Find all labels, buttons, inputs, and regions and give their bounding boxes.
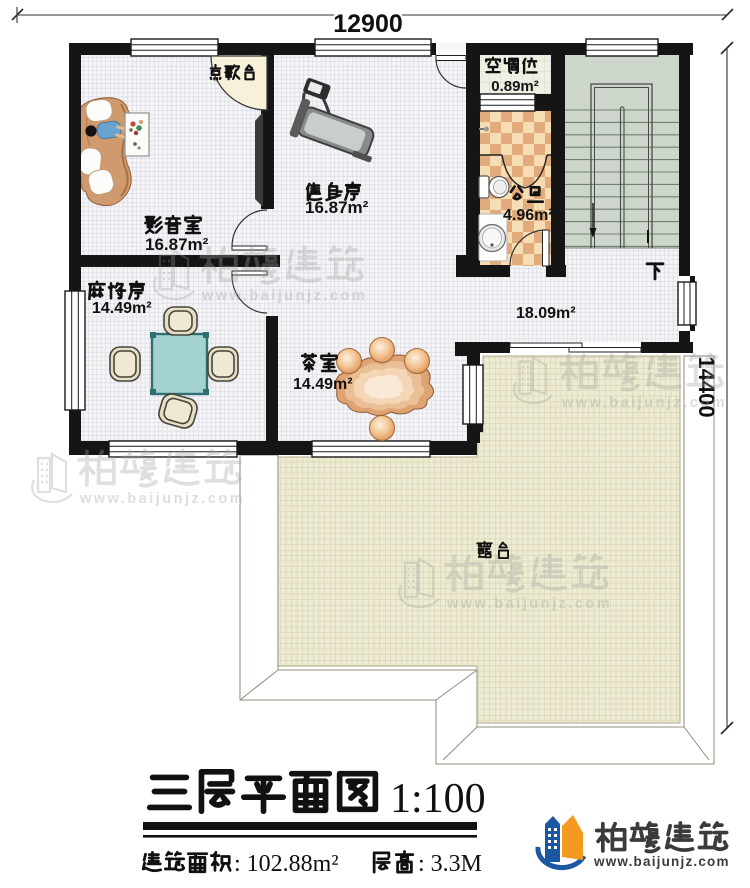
svg-text:18.09m²: 18.09m²	[516, 305, 576, 322]
svg-text:www.baijunjz.com: www.baijunjz.com	[446, 596, 612, 612]
svg-text:www.baijunjz.com: www.baijunjz.com	[201, 288, 367, 304]
svg-text:: 102.88m²: : 102.88m²	[234, 851, 339, 877]
svg-text:0.89m²: 0.89m²	[491, 78, 539, 95]
svg-text:: 3.3M: : 3.3M	[418, 851, 482, 877]
svg-text:4.96m²: 4.96m²	[503, 207, 554, 224]
svg-text:www.baijunjz.com: www.baijunjz.com	[593, 854, 730, 869]
svg-text:www.baijunjz.com: www.baijunjz.com	[561, 395, 727, 411]
svg-text:12900: 12900	[333, 10, 403, 38]
svg-text:16.87m²: 16.87m²	[145, 235, 209, 254]
svg-text:14.49m²: 14.49m²	[293, 376, 353, 393]
svg-text:16.87m²: 16.87m²	[305, 198, 369, 217]
svg-text:1:100: 1:100	[390, 776, 486, 822]
svg-text:14.49m²: 14.49m²	[92, 300, 152, 317]
svg-text:www.baijunjz.com: www.baijunjz.com	[79, 491, 245, 507]
